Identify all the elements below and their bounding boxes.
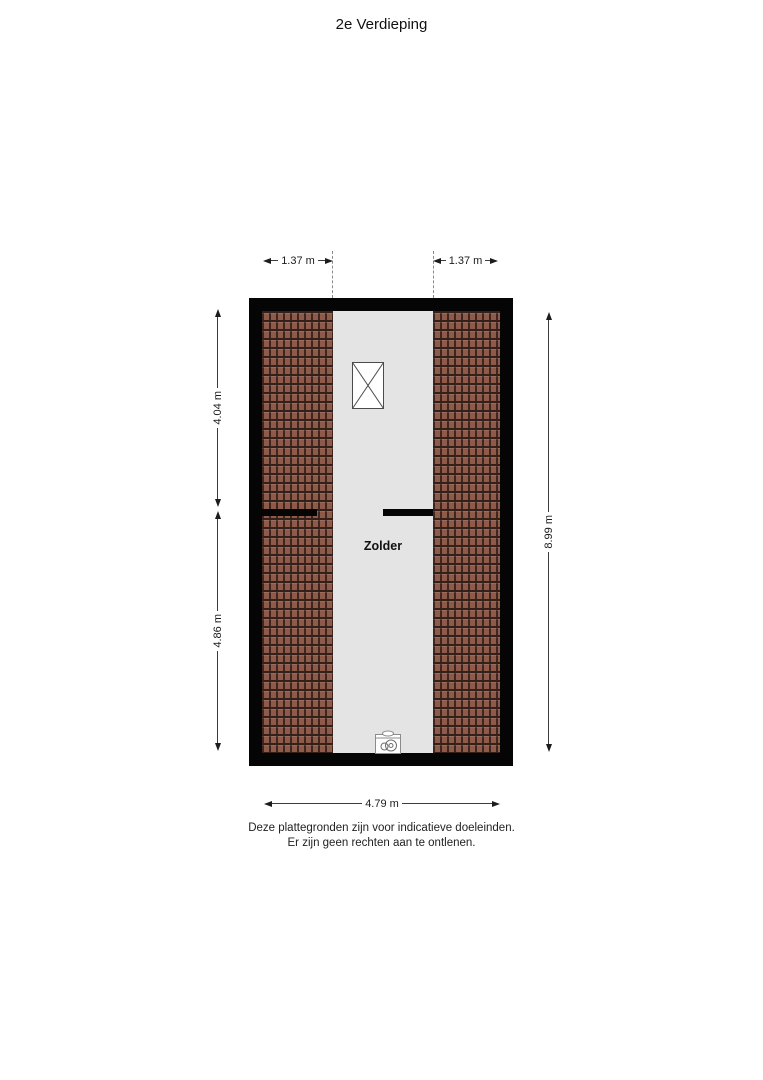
dimension-left-upper: 4.04 m: [211, 309, 224, 507]
arrowhead-up-icon: [215, 511, 221, 519]
dimension-label: 8.99 m: [543, 512, 555, 552]
arrowhead-left-icon: [264, 801, 272, 807]
dimension-label: 4.04 m: [212, 388, 224, 428]
dimension-label: 1.37 m: [446, 255, 486, 267]
interior-wall-left: [262, 509, 317, 516]
page-title: 2e Verdieping: [0, 16, 763, 33]
dimension-top-right: 1.37 m: [433, 255, 498, 266]
arrowhead-left-icon: [263, 258, 271, 264]
arrowhead-right-icon: [492, 801, 500, 807]
dimension-top-left: 1.37 m: [263, 255, 333, 266]
boiler-icon: [375, 730, 401, 754]
arrowhead-left-icon: [433, 258, 441, 264]
dimension-bottom: 4.79 m: [264, 798, 500, 809]
arrowhead-down-icon: [215, 499, 221, 507]
window-icon: [352, 362, 384, 409]
attic-interior: Zolder: [262, 311, 500, 753]
floorplan-page: 2e Verdieping 1.37 m 1.37 m 4.04 m 4.86 …: [0, 0, 763, 1080]
arrowhead-right-icon: [490, 258, 498, 264]
disclaimer: Deze plattegronden zijn voor indicatieve…: [0, 821, 763, 851]
dimension-left-lower: 4.86 m: [211, 511, 224, 751]
arrowhead-up-icon: [546, 312, 552, 320]
arrowhead-down-icon: [546, 744, 552, 752]
interior-wall-right: [383, 509, 433, 516]
dimension-label: 1.37 m: [278, 255, 318, 267]
disclaimer-line-1: Deze plattegronden zijn voor indicatieve…: [0, 821, 763, 836]
dimension-right: 8.99 m: [542, 312, 555, 752]
arrowhead-down-icon: [215, 743, 221, 751]
room-label: Zolder: [333, 539, 433, 553]
arrowhead-up-icon: [215, 309, 221, 317]
dimension-label: 4.79 m: [362, 798, 402, 810]
dimension-label: 4.86 m: [212, 611, 224, 651]
sloped-roof-left: [262, 311, 333, 753]
arrowhead-right-icon: [325, 258, 333, 264]
sloped-roof-right: [433, 311, 500, 753]
disclaimer-line-2: Er zijn geen rechten aan te ontlenen.: [0, 836, 763, 851]
